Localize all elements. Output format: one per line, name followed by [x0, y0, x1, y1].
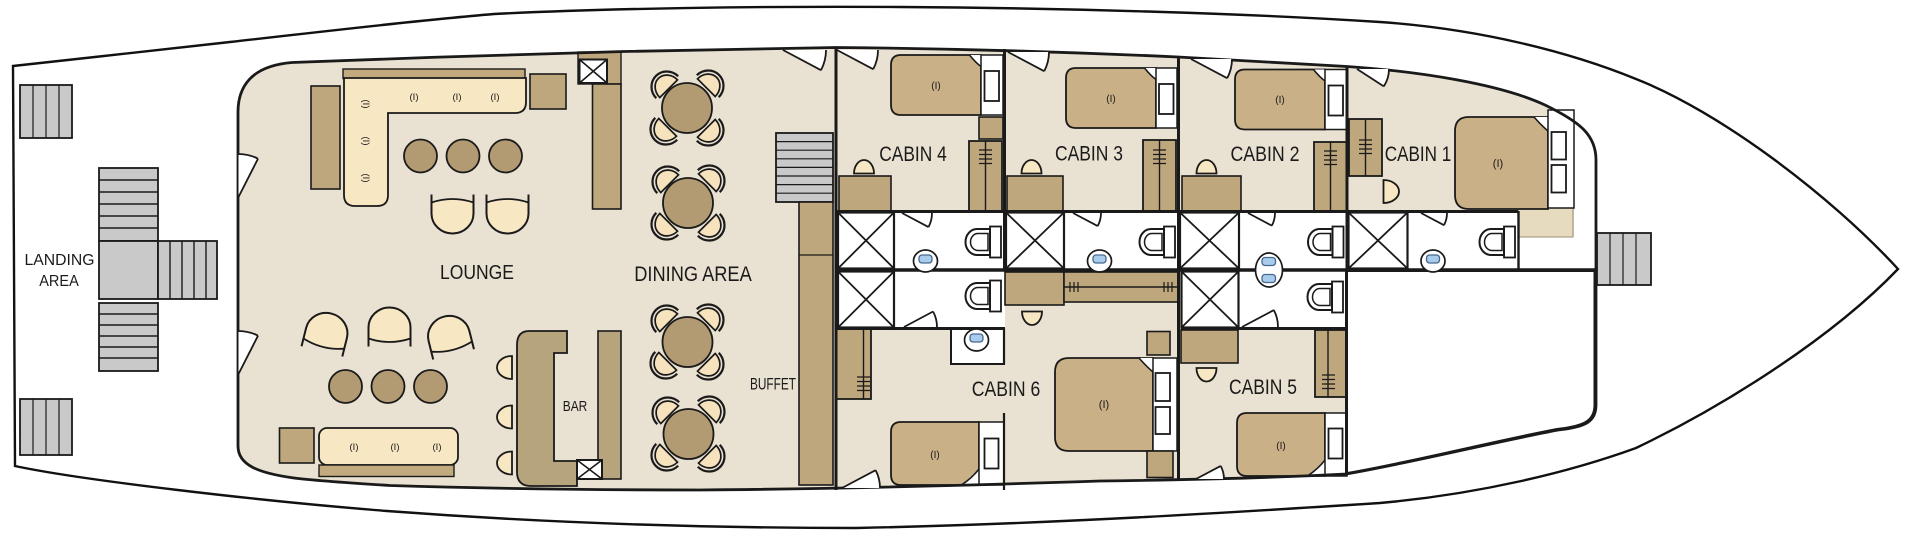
svg-text:LOUNGE: LOUNGE: [440, 261, 514, 284]
svg-text:(I): (I): [1276, 441, 1285, 452]
svg-text:(I): (I): [1493, 158, 1503, 170]
svg-text:AREA: AREA: [39, 273, 79, 290]
svg-text:(I): (I): [360, 174, 371, 183]
svg-text:CABIN 4: CABIN 4: [879, 143, 947, 166]
svg-text:(I): (I): [491, 92, 500, 103]
svg-text:(I): (I): [453, 92, 462, 103]
svg-text:(I): (I): [1099, 399, 1109, 411]
svg-text:CABIN 6: CABIN 6: [972, 378, 1041, 401]
svg-text:CABIN 3: CABIN 3: [1055, 143, 1123, 166]
svg-text:CABIN 2: CABIN 2: [1231, 143, 1300, 166]
svg-text:(I): (I): [360, 100, 371, 109]
svg-text:DINING AREA: DINING AREA: [634, 263, 752, 286]
svg-text:(I): (I): [1106, 94, 1115, 105]
svg-text:LANDING: LANDING: [25, 252, 95, 269]
svg-text:(I): (I): [931, 81, 940, 92]
svg-text:(I): (I): [410, 92, 419, 103]
svg-text:CABIN 5: CABIN 5: [1229, 376, 1297, 399]
svg-text:CABIN 1: CABIN 1: [1385, 143, 1452, 166]
svg-text:BUFFET: BUFFET: [750, 375, 796, 394]
svg-text:(I): (I): [360, 137, 371, 146]
svg-text:(I): (I): [433, 442, 442, 453]
svg-text:(I): (I): [1275, 95, 1284, 106]
svg-text:(I): (I): [391, 442, 400, 453]
svg-text:(I): (I): [350, 442, 359, 453]
svg-text:(I): (I): [930, 450, 939, 461]
svg-text:BAR: BAR: [563, 398, 588, 415]
